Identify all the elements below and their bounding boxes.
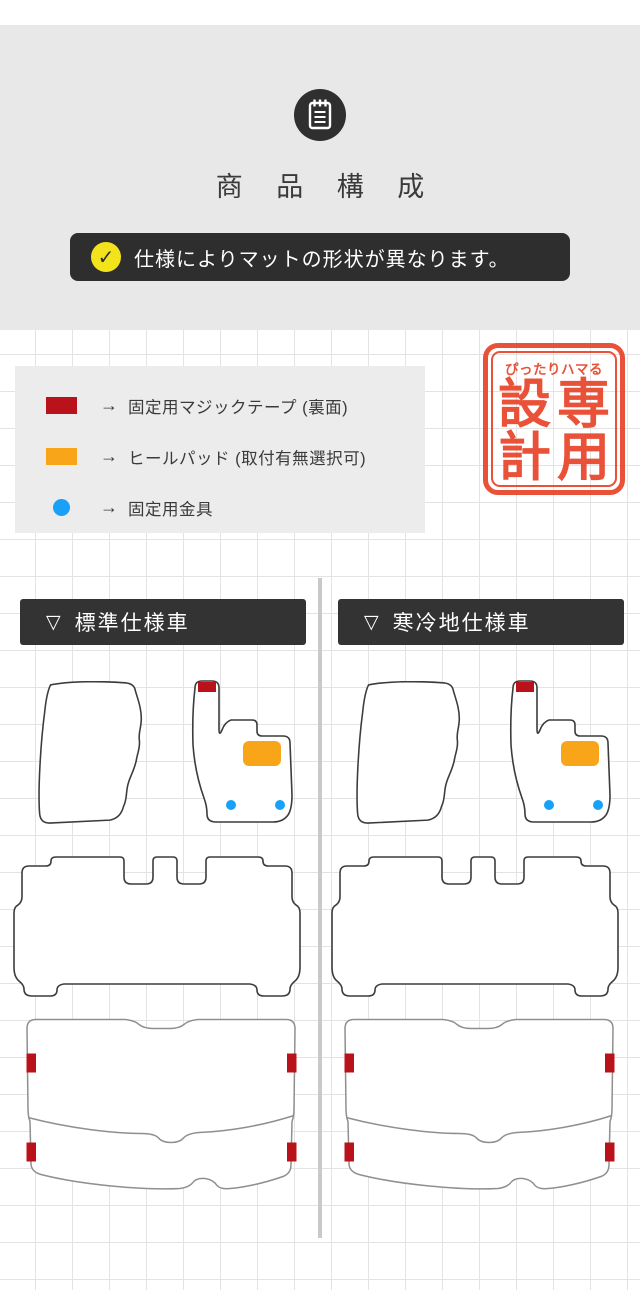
- column-cold-region-spec: ▽ 寒冷地仕様車: [338, 599, 628, 1249]
- notice-text: 仕様によりマットの形状が異なります。: [134, 243, 510, 272]
- front-passenger-mat: [34, 681, 147, 829]
- legend-label: 固定用金具: [128, 496, 213, 520]
- red-rectangle-swatch: [46, 397, 77, 414]
- front-driver-mat: [501, 679, 614, 824]
- second-row-mat: [12, 855, 302, 998]
- triangle-down-icon: ▽: [46, 611, 63, 634]
- front-passenger-mat: [352, 681, 465, 829]
- stamp-char: 用: [554, 432, 613, 485]
- legend-label: ヒールパッド (取付有無選択可): [128, 445, 366, 469]
- column-standard-spec: ▽ 標準仕様車: [20, 599, 310, 1249]
- perfect-fit-stamp: ぴったりハマる 設 専 計 用: [483, 343, 625, 495]
- arrow-icon: →: [100, 497, 118, 518]
- column-header-cold-region: ▽ 寒冷地仕様車: [338, 599, 624, 645]
- legend-label: 固定用マジックテープ (裏面): [128, 394, 348, 418]
- notepad-icon: [294, 89, 346, 141]
- stamp-char: 専: [554, 379, 613, 432]
- trunk-mat: [343, 1013, 616, 1196]
- page-title: 商 品 構 成: [0, 165, 640, 204]
- column-header-label: 標準仕様車: [75, 607, 190, 637]
- orange-rectangle-swatch: [46, 448, 77, 465]
- arrow-icon: →: [100, 395, 118, 416]
- header-panel: 商 品 構 成 ✓ 仕様によりマットの形状が異なります。: [0, 25, 640, 330]
- column-divider: [318, 578, 322, 1238]
- legend-box: → 固定用マジックテープ (裏面) → ヒールパッド (取付有無選択可) → 固…: [15, 366, 425, 533]
- stamp-inner-border: ぴったりハマる 設 専 計 用: [491, 351, 617, 487]
- arrow-icon: →: [100, 446, 118, 467]
- product-composition-section: 商 品 構 成 ✓ 仕様によりマットの形状が異なります。 → 固定用マジックテー…: [0, 0, 640, 1290]
- legend-item-velcro: → 固定用マジックテープ (裏面): [46, 383, 425, 428]
- column-header-label: 寒冷地仕様車: [393, 607, 531, 637]
- blue-dot-swatch: [53, 499, 70, 516]
- diagram-area: → 固定用マジックテープ (裏面) → ヒールパッド (取付有無選択可) → 固…: [0, 330, 640, 1290]
- stamp-main-text: 設 専 計 用: [495, 379, 613, 485]
- legend-item-heelpad: → ヒールパッド (取付有無選択可): [46, 434, 425, 479]
- stamp-char: 設: [495, 379, 554, 432]
- triangle-down-icon: ▽: [364, 611, 381, 634]
- second-row-mat: [330, 855, 620, 998]
- stamp-top-text: ぴったりハマる: [505, 358, 603, 378]
- notice-badge: ✓ 仕様によりマットの形状が異なります。: [70, 233, 570, 281]
- front-driver-mat: [183, 679, 296, 824]
- check-icon: ✓: [91, 242, 121, 272]
- legend-item-fastener: → 固定用金具: [46, 485, 425, 530]
- column-header-standard: ▽ 標準仕様車: [20, 599, 306, 645]
- trunk-mat: [25, 1013, 298, 1196]
- stamp-char: 計: [495, 432, 554, 485]
